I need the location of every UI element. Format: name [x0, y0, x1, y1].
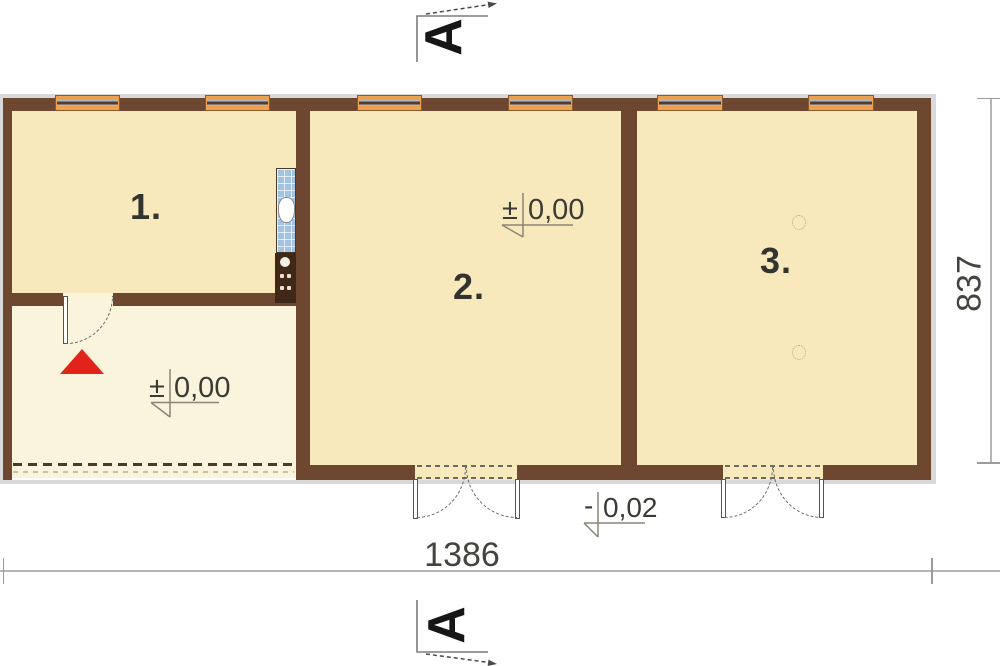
window-icon — [808, 95, 874, 111]
level-sign: ± — [502, 196, 518, 225]
window-icon — [657, 95, 723, 111]
dimension-width-label: 1386 — [402, 536, 522, 575]
stove-icon — [275, 253, 296, 303]
wall-left — [3, 111, 12, 480]
door-swing-arc — [416, 467, 466, 518]
interior-wall-room2-room3 — [621, 111, 637, 465]
section-letter-top: A — [417, 10, 471, 64]
level-marker-exterior: - 0,02 — [575, 490, 655, 540]
window-glass — [659, 100, 721, 106]
section-marker-top: A — [408, 0, 508, 72]
window-icon — [508, 95, 573, 111]
level-value: 0,02 — [603, 494, 658, 522]
room-3-floor — [637, 111, 917, 465]
terrace-edge-dashed-line — [13, 471, 294, 473]
knob-icon — [280, 286, 284, 290]
level-value: 0,00 — [528, 196, 584, 225]
shadow-edge-right — [931, 94, 936, 484]
window-glass — [810, 100, 872, 106]
wall-bottom-segment-2 — [517, 465, 723, 480]
floor-plan: 1. 2. 3. ± 0,00 ± 0,00 - 0,02 1386 — [0, 0, 1000, 666]
door-swing-arc — [466, 467, 517, 518]
room-3-label: 3. — [760, 240, 792, 282]
wall-right — [917, 111, 931, 480]
dimension-tick — [931, 558, 933, 584]
dimension-line-height — [990, 98, 992, 463]
knob-icon — [287, 286, 291, 290]
level-value: 0,00 — [174, 374, 230, 403]
roof-overhang-dashed-line — [13, 463, 294, 466]
door-swing-arc — [773, 467, 822, 518]
dimension-tick — [977, 462, 1000, 464]
window-glass — [207, 100, 268, 106]
burner-icon — [280, 257, 290, 267]
window-glass — [510, 100, 571, 106]
dimension-tick — [3, 558, 5, 584]
interior-wall-room1-room2 — [296, 111, 310, 465]
dimension-height-label: 837 — [951, 244, 990, 324]
level-sign: - — [584, 492, 593, 520]
door-swing-arc — [724, 467, 773, 518]
ceiling-mark-icon — [792, 345, 806, 360]
interior-wall-room1-vestibule-a — [12, 293, 63, 306]
section-marker-bottom: A — [408, 594, 508, 666]
room-2-label: 2. — [453, 266, 485, 308]
window-glass — [359, 100, 420, 106]
level-sign: ± — [149, 374, 165, 403]
dimension-tick — [977, 98, 1000, 100]
knob-icon — [287, 274, 291, 278]
window-icon — [357, 95, 422, 111]
interior-wall-room1-vestibule-b — [113, 293, 296, 306]
section-arrow-icon — [488, 2, 497, 8]
wall-bottom-segment-1 — [296, 465, 415, 480]
section-arrow-icon — [488, 660, 497, 666]
wall-top — [3, 98, 931, 111]
window-glass — [57, 100, 118, 106]
entrance-arrow-icon — [60, 349, 104, 374]
sink-icon — [278, 197, 295, 223]
wall-bottom-segment-3 — [823, 465, 931, 480]
section-letter-bottom: A — [420, 598, 474, 652]
knob-icon — [280, 274, 284, 278]
level-marker-room2: ± 0,00 — [495, 190, 579, 240]
room-1-label: 1. — [130, 186, 162, 228]
level-marker-vestibule: ± 0,00 — [143, 366, 223, 420]
ceiling-mark-icon — [792, 215, 806, 230]
window-icon — [55, 95, 120, 111]
window-icon — [205, 95, 270, 111]
